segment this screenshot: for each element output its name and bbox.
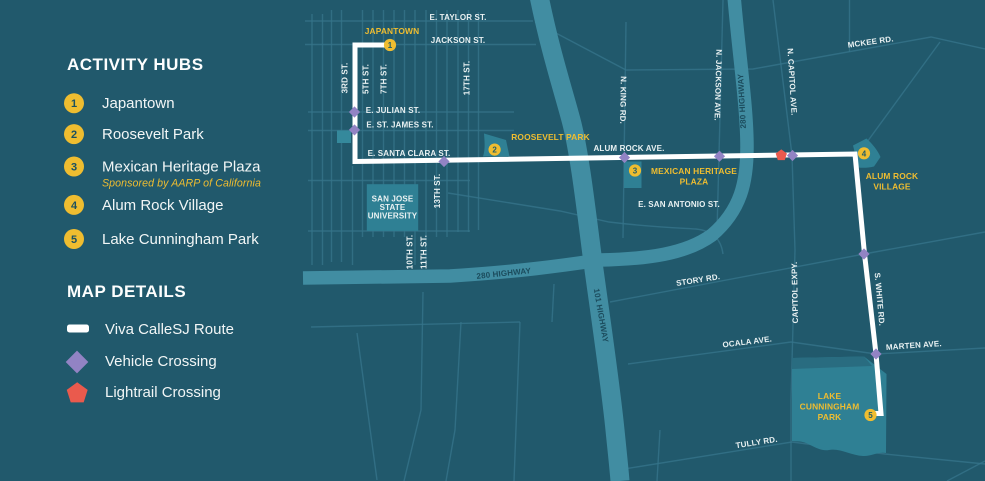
svg-text:E. SANTA CLARA ST.: E. SANTA CLARA ST. [368,149,451,158]
svg-text:Viva CalleSJ Route: Viva CalleSJ Route [105,321,234,338]
svg-text:PLAZA: PLAZA [680,177,709,187]
svg-text:4: 4 [862,149,867,158]
svg-text:E. ST. JAMES ST.: E. ST. JAMES ST. [366,120,433,129]
svg-text:3: 3 [633,167,638,176]
svg-text:E. SAN ANTONIO ST.: E. SAN ANTONIO ST. [638,200,720,209]
svg-text:Sponsored by AARP of Californi: Sponsored by AARP of California [102,178,261,190]
svg-text:2: 2 [71,129,77,141]
svg-text:ROOSEVELT PARK: ROOSEVELT PARK [511,132,590,142]
svg-text:Japantown: Japantown [102,95,175,112]
svg-text:2: 2 [492,146,497,155]
svg-text:LAKE: LAKE [818,391,842,401]
svg-text:JACKSON ST.: JACKSON ST. [431,36,486,45]
svg-text:CUNNINGHAM: CUNNINGHAM [800,402,860,412]
svg-text:17TH ST.: 17TH ST. [463,61,472,96]
svg-text:Vehicle Crossing: Vehicle Crossing [105,353,217,370]
svg-text:3: 3 [71,162,77,174]
svg-text:MEXICAN HERITAGE: MEXICAN HERITAGE [651,166,737,176]
svg-text:5: 5 [868,411,873,420]
svg-text:E. TAYLOR ST.: E. TAYLOR ST. [429,13,486,22]
svg-text:Lightrail Crossing: Lightrail Crossing [105,384,221,401]
svg-text:3RD ST.: 3RD ST. [341,63,350,94]
svg-text:VILLAGE: VILLAGE [873,182,911,192]
svg-text:ACTIVITY HUBS: ACTIVITY HUBS [67,55,204,74]
svg-text:ALUM ROCK AVE.: ALUM ROCK AVE. [594,144,665,153]
svg-text:E. JULIAN ST.: E. JULIAN ST. [366,106,420,115]
svg-text:ALUM ROCK: ALUM ROCK [866,171,919,181]
svg-text:Alum Rock Village: Alum Rock Village [102,197,223,214]
svg-text:CAPITOL EXPY.: CAPITOL EXPY. [790,262,800,324]
svg-text:4: 4 [71,200,78,212]
svg-text:7TH ST.: 7TH ST. [380,64,389,94]
svg-text:Lake Cunningham Park: Lake Cunningham Park [102,231,259,248]
svg-text:UNIVERSITY: UNIVERSITY [368,212,418,221]
svg-text:JAPANTOWN: JAPANTOWN [365,26,420,36]
svg-text:1: 1 [71,98,77,110]
svg-text:5: 5 [71,234,77,246]
svg-text:PARK: PARK [818,412,842,422]
svg-text:1: 1 [388,41,393,50]
svg-text:11TH ST.: 11TH ST. [420,235,429,269]
svg-text:10TH ST.: 10TH ST. [406,235,415,270]
svg-text:13TH ST.: 13TH ST. [433,174,442,209]
svg-text:5TH ST.: 5TH ST. [362,64,371,94]
svg-text:N. JACKSON AVE.: N. JACKSON AVE. [713,49,724,121]
svg-text:MAP DETAILS: MAP DETAILS [67,282,186,301]
svg-text:N. KING RD.: N. KING RD. [618,76,628,124]
svg-text:Mexican Heritage Plaza: Mexican Heritage Plaza [102,158,261,175]
svg-text:Roosevelt Park: Roosevelt Park [102,126,204,143]
